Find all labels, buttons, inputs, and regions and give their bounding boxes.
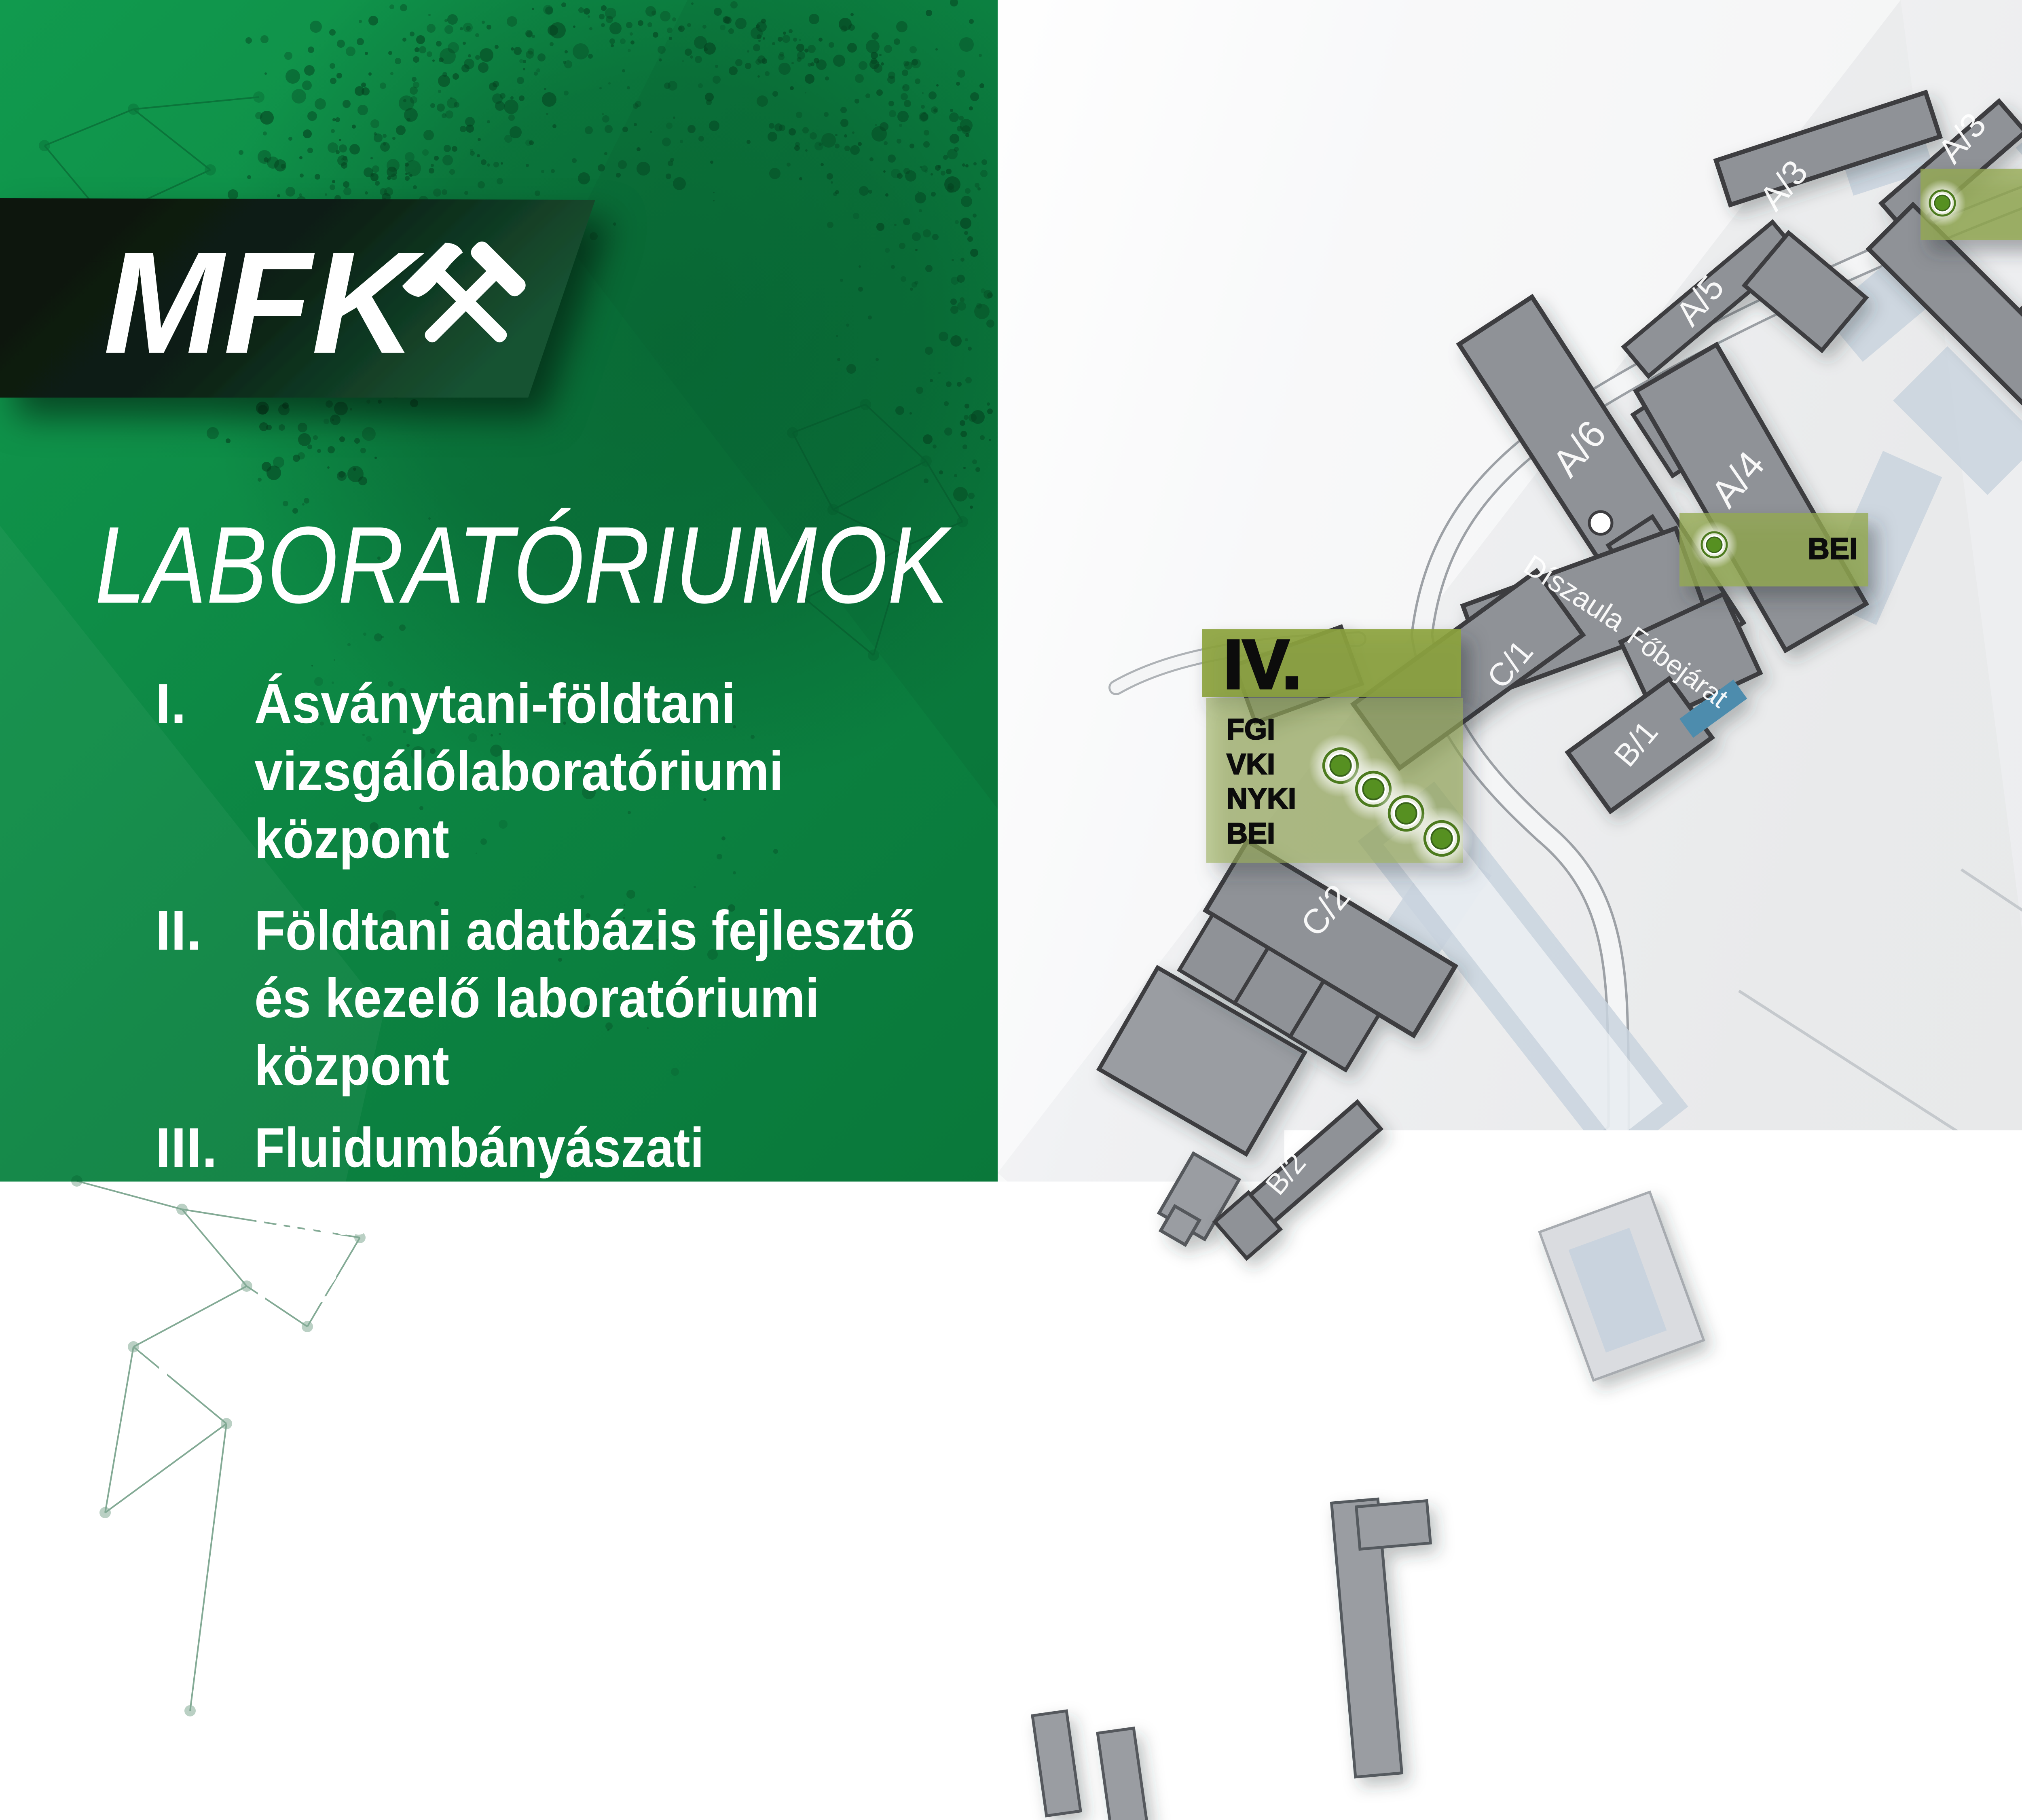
svg-text:központ: központ [254, 1540, 449, 1602]
svg-text:I.: I. [155, 673, 186, 735]
svg-text:és kezelő laboratóriumi: és kezelő laboratóriumi [254, 967, 819, 1029]
svg-text:Fluidumbányászati: Fluidumbányászati [254, 1117, 704, 1179]
svg-text:Földtani adatbázis fejlesztő: Földtani adatbázis fejlesztő [254, 899, 915, 962]
svg-text:IV.: IV. [155, 1337, 218, 1399]
svg-text:NYKI: NYKI [1227, 783, 1296, 815]
svg-text:Ásványtani-földtani: Ásványtani-földtani [254, 673, 736, 735]
svg-text:IV.: IV. [1224, 626, 1301, 703]
svg-text:Környezettudományi: Környezettudományi [254, 1405, 764, 1467]
svg-text:BEI: BEI [1227, 817, 1275, 850]
svg-text:II.: II. [155, 899, 202, 962]
svg-text:VKI: VKI [1227, 748, 1275, 781]
svg-text:BEI: BEI [1808, 532, 1857, 565]
svg-text:MFK: MFK [104, 222, 427, 383]
svg-text:LABORATÓRIUMOK: LABORATÓRIUMOK [95, 504, 953, 626]
svg-text:központ: központ [254, 1252, 449, 1314]
svg-text:Műszaki Földtudományi -: Műszaki Földtudományi - [254, 1337, 867, 1399]
svg-text:III.: III. [155, 1117, 217, 1179]
svg-text:vizsgálólaboratóriumi: vizsgálólaboratóriumi [254, 740, 783, 802]
svg-text:oktató-kutató laboratóriumi: oktató-kutató laboratóriumi [254, 1184, 939, 1246]
svg-text:FGI: FGI [1227, 713, 1275, 746]
svg-text:központ: központ [254, 808, 449, 870]
svg-text:oktató-kutató és innovációs: oktató-kutató és innovációs [254, 1472, 935, 1534]
svg-text:központ: központ [254, 1035, 449, 1097]
